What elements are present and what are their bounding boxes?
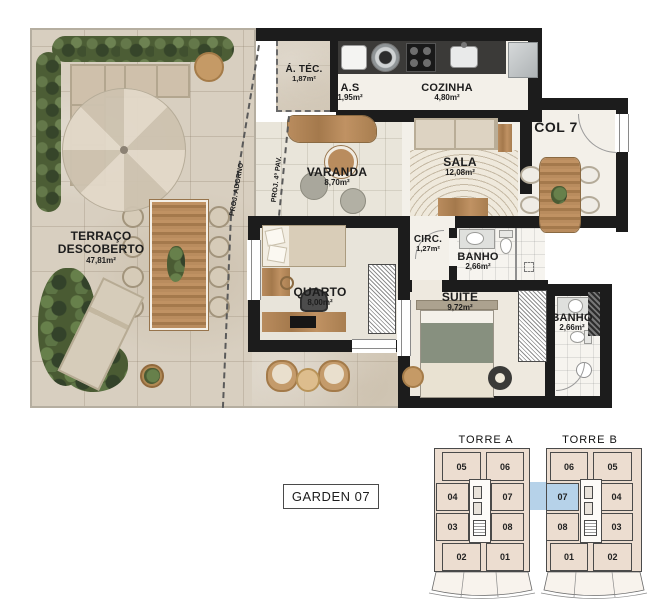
col7-chair bbox=[520, 166, 542, 184]
wall-col7-top bbox=[528, 98, 628, 110]
room-area: 2,66m² bbox=[446, 263, 510, 272]
varanda-pouf bbox=[340, 188, 366, 214]
stove-burner bbox=[423, 59, 431, 67]
room-area: 1,87m² bbox=[276, 75, 332, 83]
banho1-shower-glass bbox=[515, 228, 517, 280]
keyplan-podium-fan bbox=[424, 571, 652, 600]
door-opening-circ bbox=[410, 216, 455, 228]
suite-lamp bbox=[495, 373, 505, 383]
room-area: 1,95m² bbox=[328, 94, 372, 103]
quarto-tv bbox=[290, 316, 316, 328]
tower-a-elevator bbox=[473, 486, 482, 499]
room-label-terraco: TERRAÇO DESCOBERTO 47,81m² bbox=[42, 230, 160, 266]
room-label-as: A.S 1,95m² bbox=[328, 82, 372, 103]
keyplan-unit-a01: 01 bbox=[486, 543, 524, 571]
stove-burner bbox=[410, 59, 418, 67]
keyplan-unit-b08: 08 bbox=[546, 513, 579, 541]
room-label-banho2: BANHO 2,66m² bbox=[540, 312, 604, 333]
hedge-left bbox=[36, 52, 61, 212]
terrace-side-table bbox=[194, 52, 224, 82]
room-label-banho1: BANHO 2,66m² bbox=[446, 251, 510, 272]
room-area: 8,00m² bbox=[280, 299, 360, 308]
banho1-shower-drain bbox=[524, 262, 534, 272]
sala-tv-console bbox=[438, 198, 488, 216]
dining-chair bbox=[122, 266, 144, 288]
sala-side-table bbox=[498, 124, 512, 152]
keyplan-unit-a05: 05 bbox=[442, 452, 481, 481]
keyplan-unit-a06: 06 bbox=[486, 452, 524, 481]
keyplan-unit-b03: 03 bbox=[600, 513, 633, 541]
room-area: 8,70m² bbox=[297, 179, 377, 188]
room-area: 2,66m² bbox=[540, 324, 604, 333]
suite-nightstand-left bbox=[402, 366, 424, 388]
lounge-armchair-cushion bbox=[272, 364, 292, 384]
col7-chair bbox=[578, 196, 600, 214]
tower-a-stairs bbox=[473, 520, 486, 536]
quarto-wardrobe bbox=[368, 264, 396, 334]
tower-b-label: TORRE B bbox=[542, 434, 638, 446]
col7-chair bbox=[520, 196, 542, 214]
highlight-gap bbox=[530, 482, 546, 510]
room-area: 9,72m² bbox=[428, 304, 492, 313]
room-area: 4,80m² bbox=[402, 94, 492, 103]
keyplan-unit-b01: 01 bbox=[550, 543, 588, 571]
dining-chair bbox=[208, 206, 230, 228]
keyplan-unit-a04: 04 bbox=[436, 483, 469, 511]
banho1-sink bbox=[466, 232, 484, 245]
sala-sofa bbox=[414, 118, 498, 150]
suite-bed bbox=[420, 310, 494, 398]
room-label-quarto: QUARTO 8,00m² bbox=[280, 286, 360, 308]
umbrella-pole bbox=[120, 146, 128, 154]
room-label-cozinha: COZINHA 4,80m² bbox=[402, 82, 492, 103]
kitchen-faucet bbox=[461, 42, 467, 48]
sliding-door-quarto-terrace bbox=[352, 339, 396, 353]
room-label-atec: Á. TÉC. 1,87m² bbox=[276, 64, 332, 84]
keyplan-unit-b07-highlighted: 07 bbox=[546, 483, 579, 511]
tower-b-elevator bbox=[584, 486, 593, 499]
keyplan-unit-b02: 02 bbox=[593, 543, 632, 571]
tower-b-stairs bbox=[584, 520, 597, 536]
room-name: COL 7 bbox=[520, 120, 592, 136]
floor-plan-page: TERRAÇO DESCOBERTO 47,81m² PROJ. ADORNO … bbox=[0, 0, 653, 600]
quarto-pillow bbox=[267, 245, 288, 264]
keyplan-unit-a08: 08 bbox=[491, 513, 524, 541]
room-name: VARANDA bbox=[297, 166, 377, 179]
keyplan-unit-a03: 03 bbox=[436, 513, 469, 541]
tower-a-label: TORRE A bbox=[438, 434, 534, 446]
unit-label-box: GARDEN 07 bbox=[283, 484, 379, 509]
wall-top bbox=[256, 28, 542, 41]
washing-machine bbox=[371, 43, 400, 72]
window-quarto bbox=[247, 240, 261, 300]
varanda-sideboard bbox=[288, 116, 376, 142]
keyplan-unit-a02: 02 bbox=[442, 543, 481, 571]
laundry-sink bbox=[341, 45, 367, 70]
entry-door-gap-col7 bbox=[615, 114, 629, 152]
window-suite bbox=[397, 300, 411, 356]
room-area: 12,08m² bbox=[428, 169, 492, 178]
room-label-varanda: VARANDA 8,70m² bbox=[297, 166, 377, 188]
tower-b-elevator bbox=[584, 502, 593, 515]
key-plan: TORRE A TORRE B 05 06 04 07 03 08 02 01 … bbox=[424, 432, 652, 600]
banho2-sink bbox=[568, 299, 583, 313]
dining-chair bbox=[208, 236, 230, 258]
col7-chair bbox=[578, 166, 600, 184]
banho1-toilet bbox=[499, 230, 513, 238]
room-label-suite: SUÍTE 9,72m² bbox=[428, 291, 492, 313]
stove-burner bbox=[410, 47, 418, 55]
keyplan-unit-a07: 07 bbox=[491, 483, 524, 511]
unit-label: GARDEN 07 bbox=[292, 489, 370, 504]
keyplan-unit-b04: 04 bbox=[600, 483, 633, 511]
kitchen-sink bbox=[450, 46, 478, 68]
fridge bbox=[508, 42, 538, 78]
room-label-col7: COL 7 bbox=[520, 120, 592, 136]
room-name: SALA bbox=[428, 156, 492, 169]
tower-a-elevator bbox=[473, 502, 482, 515]
lounge-side-table bbox=[296, 368, 320, 392]
room-name: QUARTO bbox=[280, 286, 360, 299]
room-label-sala: SALA 12,08m² bbox=[428, 156, 492, 178]
lounge-armchair-cushion bbox=[324, 364, 344, 384]
room-area: 47,81m² bbox=[42, 257, 160, 266]
keyplan-unit-b05: 05 bbox=[593, 452, 632, 481]
wall-banho2-right bbox=[600, 284, 612, 408]
room-name: TERRAÇO DESCOBERTO bbox=[42, 230, 160, 257]
keyplan-unit-b06: 06 bbox=[550, 452, 588, 481]
room-name: SUÍTE bbox=[428, 291, 492, 304]
stove-burner bbox=[423, 47, 431, 55]
